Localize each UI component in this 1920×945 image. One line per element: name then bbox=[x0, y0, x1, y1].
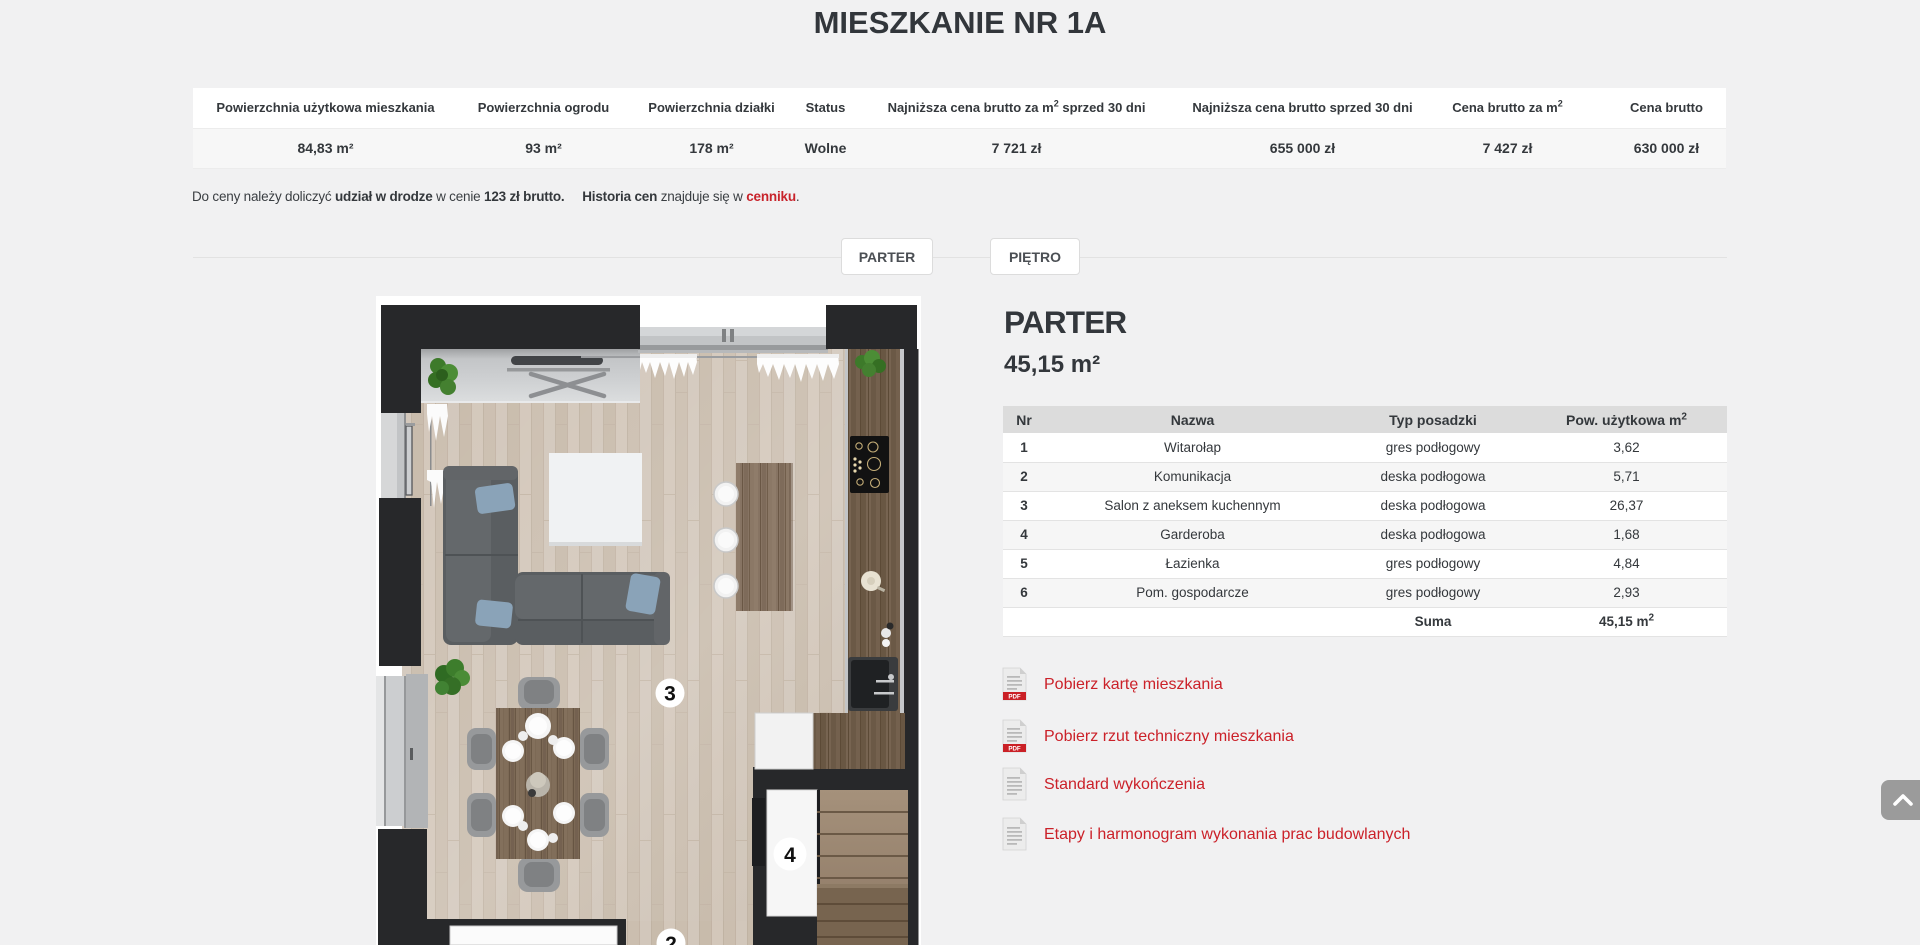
svg-text:3: 3 bbox=[664, 683, 676, 706]
svg-text:PDF: PDF bbox=[1008, 693, 1021, 700]
svg-text:PDF: PDF bbox=[1008, 745, 1021, 752]
svg-text:2: 2 bbox=[665, 933, 677, 945]
svg-text:4: 4 bbox=[784, 844, 796, 867]
